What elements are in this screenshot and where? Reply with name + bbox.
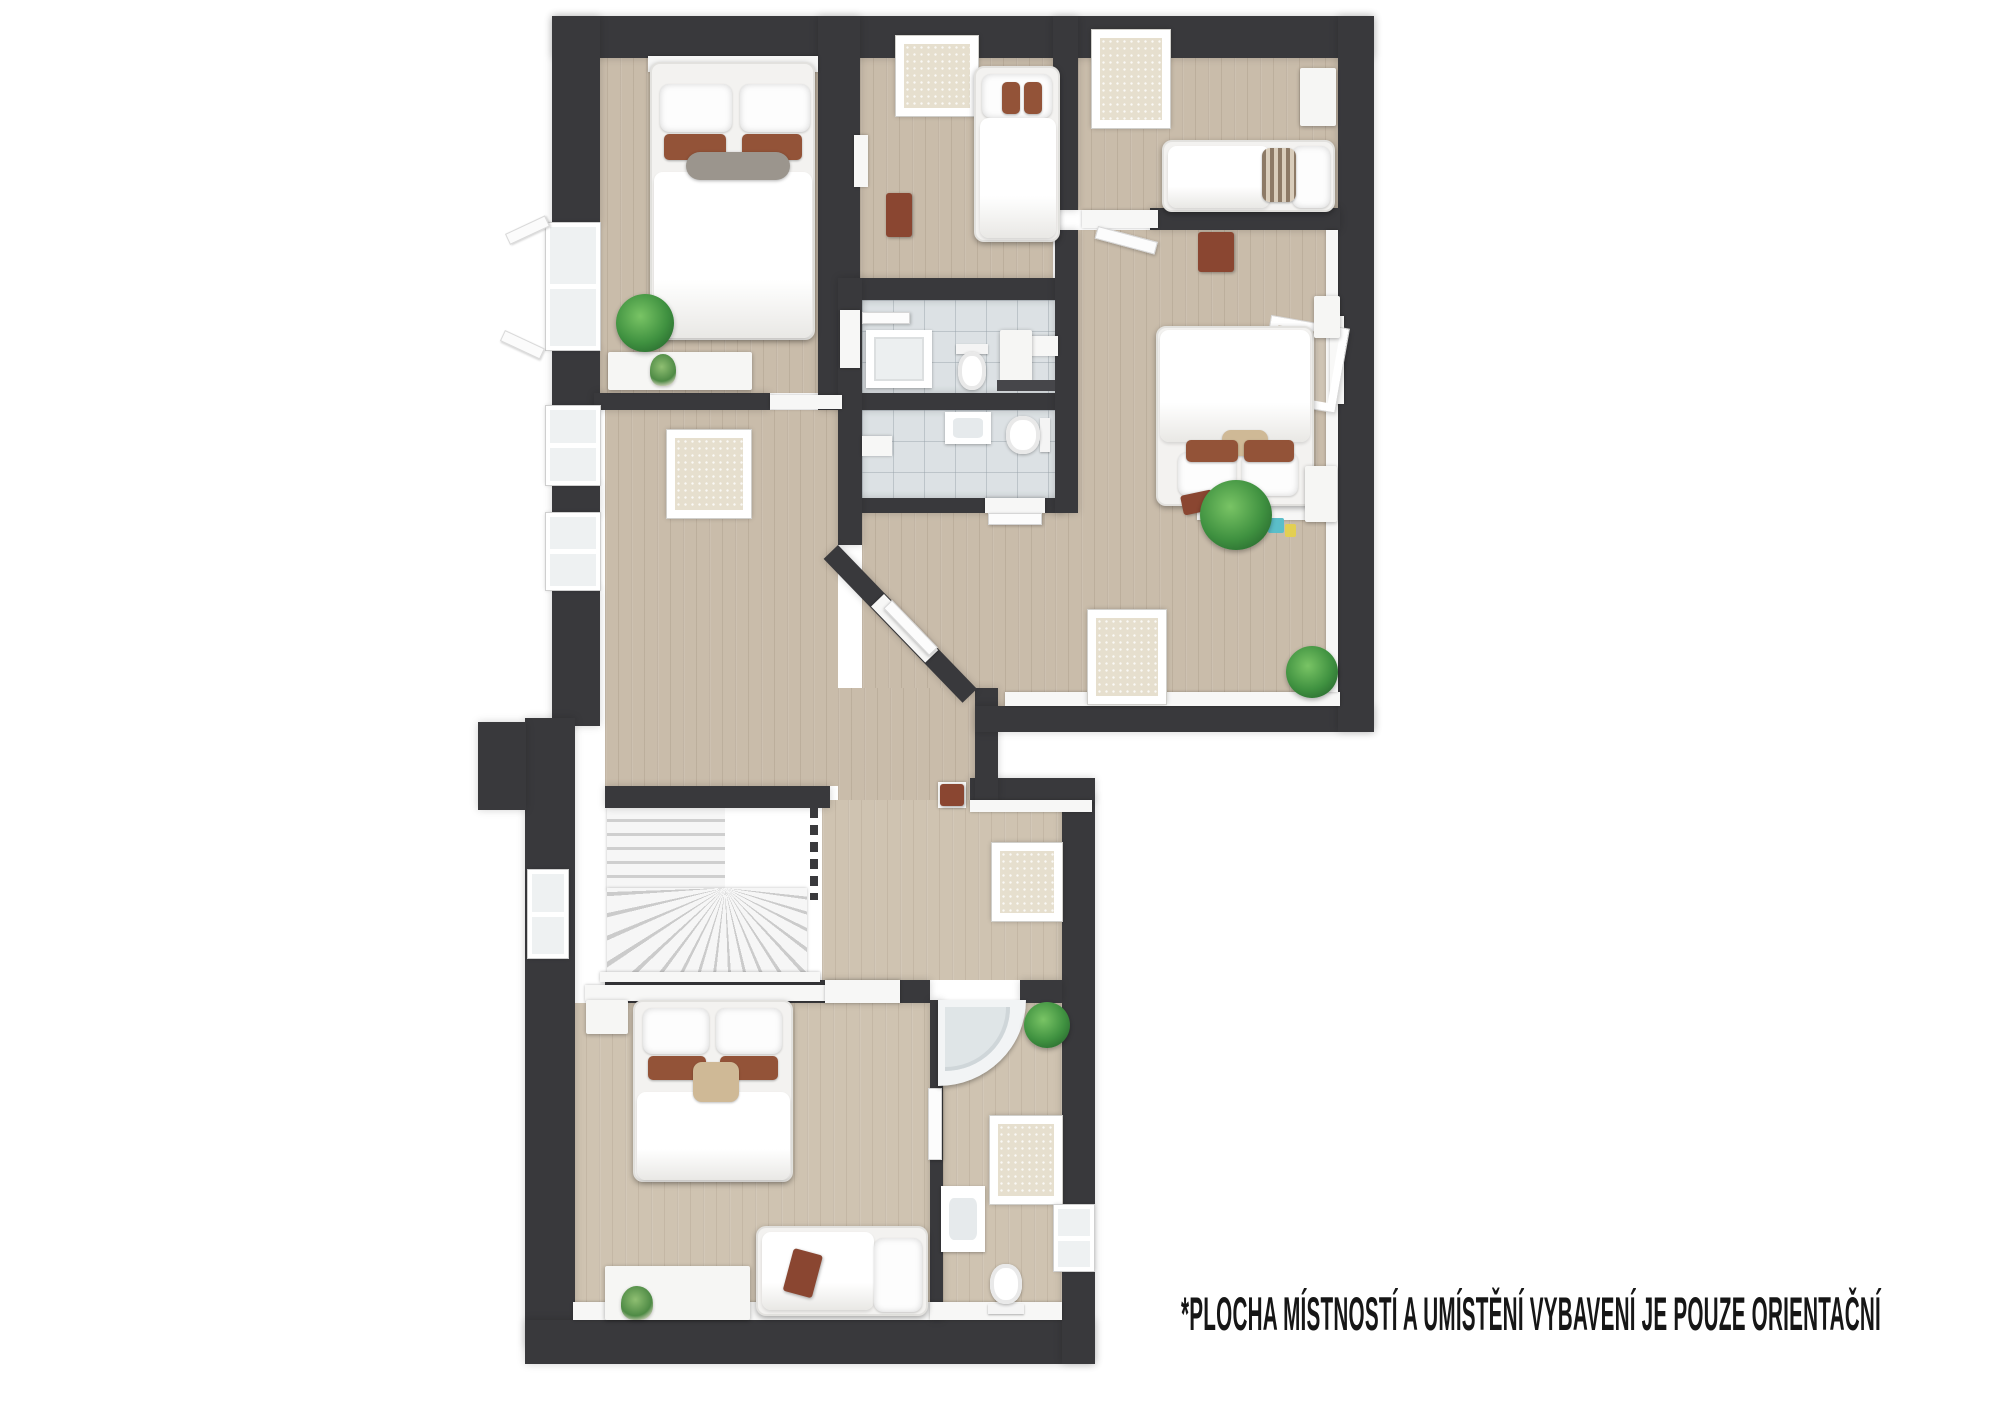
bathroom1-faucet	[1028, 336, 1058, 356]
right-wall-lower	[1062, 795, 1095, 1364]
bathroom3-stub-wall	[1020, 980, 1062, 1003]
bathroom2-door-leaf	[988, 513, 1042, 525]
bathroom3-toilet	[990, 1264, 1022, 1304]
bottom-wall	[525, 1320, 1095, 1364]
bedroom4-daybed-pillow	[874, 1238, 922, 1312]
left-wall-3	[552, 483, 600, 515]
left-wall-lower	[525, 718, 575, 1348]
bedroom3-door-threshold	[1082, 210, 1158, 228]
master-baseboard	[1005, 692, 1340, 706]
bedroom1-door-threshold	[770, 395, 842, 409]
window-1-sash-bottom	[500, 330, 545, 359]
master-accent-pillow-left	[1186, 440, 1238, 462]
bedroom1-pillow-left	[660, 84, 732, 132]
bedroom1-pillow-right	[740, 84, 810, 132]
bathroom3-plant	[1024, 1002, 1070, 1048]
window-3	[546, 513, 600, 590]
stairs-winder	[607, 888, 807, 974]
hall-stool	[940, 784, 964, 806]
bathroom2-toilet	[1006, 416, 1040, 454]
master-left-wall	[1055, 230, 1078, 513]
bedroom4-pillow-left	[643, 1008, 709, 1054]
bathroom3-window	[1054, 1205, 1094, 1271]
dresser-plant	[621, 1286, 653, 1320]
bathroom1-door-threshold	[840, 310, 860, 368]
bathroom2-shower-head	[862, 436, 892, 456]
hall-skylight	[667, 430, 751, 518]
master-desk	[1305, 466, 1337, 522]
hall-lower-skylight	[992, 843, 1062, 921]
bathroom1-cabinet	[1000, 330, 1032, 382]
bedroom1-sideboard	[608, 352, 752, 390]
bathroom3-skylight	[990, 1116, 1062, 1204]
left-wall-upper	[552, 16, 600, 224]
floorplan	[0, 0, 2000, 1414]
master-duvet	[1160, 330, 1310, 442]
sideboard-flower	[650, 354, 676, 386]
bathroom1-counter	[997, 380, 1055, 391]
bedroom3-skylight	[1092, 30, 1170, 128]
bedroom2-duvet	[980, 118, 1056, 238]
bathroom3-door-leaf	[928, 1088, 942, 1160]
master-nightstand	[1314, 296, 1340, 338]
bedroom1-bolster	[686, 152, 790, 180]
stairs-straight-flight	[607, 808, 725, 890]
stairs-top-wall	[605, 786, 830, 808]
lowerblock-top-trim	[970, 800, 1092, 812]
stairs-bottom-edge	[600, 972, 820, 982]
disclaimer-text: *PLOCHA MÍSTNOSTÍ A UMÍSTĚNÍ VYBAVENÍ JE…	[1181, 1286, 1881, 1341]
bedroom2-bottom-wall	[860, 278, 1055, 300]
bedroom3-accent-pillow	[1262, 148, 1296, 202]
master-accent-pillow-right	[1244, 440, 1294, 462]
window-2	[546, 406, 600, 485]
bedroom4-cushion	[693, 1062, 739, 1102]
gap-wall	[975, 688, 998, 800]
chimney-stub	[478, 722, 526, 810]
desk-item-yellow	[1285, 524, 1296, 537]
bedroom4-nightstand	[586, 1000, 628, 1034]
bedroom4-duvet	[637, 1092, 790, 1180]
bedroom4-headboard-trim	[585, 985, 828, 1001]
bedroom4-door-threshold	[825, 980, 900, 1003]
bathroom2-door-threshold	[985, 498, 1045, 513]
master-plant	[1200, 480, 1272, 550]
bedroom2-accent-pillow-right	[1024, 82, 1042, 114]
bathroom1-shower-tray	[866, 330, 932, 388]
bedroom1-duvet	[654, 172, 812, 338]
master-bottom-wall	[975, 706, 1374, 732]
bathroom3-sink	[941, 1186, 985, 1252]
bedroom4-pillow-right	[716, 1008, 782, 1054]
bedroom2-door-trim	[854, 135, 868, 187]
left-wall-2	[552, 348, 600, 408]
bathroom2-sink	[945, 412, 991, 444]
bedroom3-pillow	[1292, 146, 1330, 208]
bedroom2-skylight	[896, 36, 978, 116]
bathroom1-toilet	[958, 352, 986, 390]
window-1-sash-top	[505, 215, 550, 244]
window-1	[546, 223, 600, 350]
bedroom2-accent-pillow-left	[1002, 82, 1020, 114]
stairs-railing	[810, 808, 818, 900]
bathroom-divider-wall	[862, 393, 1055, 410]
stairs-void	[725, 808, 807, 888]
bedroom3-shelf	[1300, 68, 1336, 126]
bedroom3-duvet	[1168, 146, 1270, 208]
left-wall-4	[552, 588, 600, 726]
floorplan-page: *PLOCHA MÍSTNOSTÍ A UMÍSTĚNÍ VYBAVENÍ JE…	[0, 0, 2000, 1414]
master-skylight	[1088, 610, 1166, 704]
bathroom3-toilet-tank	[988, 1304, 1024, 1314]
bathroom1-door-leaf	[862, 312, 910, 324]
master-wall-shelf	[1198, 232, 1234, 272]
master-plant-2	[1286, 646, 1338, 698]
bathroom2-toilet-tank	[1040, 418, 1050, 452]
bedroom1-bottom-wall	[594, 393, 770, 410]
bedroom2-chair	[886, 193, 912, 237]
window-4	[528, 870, 568, 958]
bedroom1-plant	[616, 294, 674, 352]
